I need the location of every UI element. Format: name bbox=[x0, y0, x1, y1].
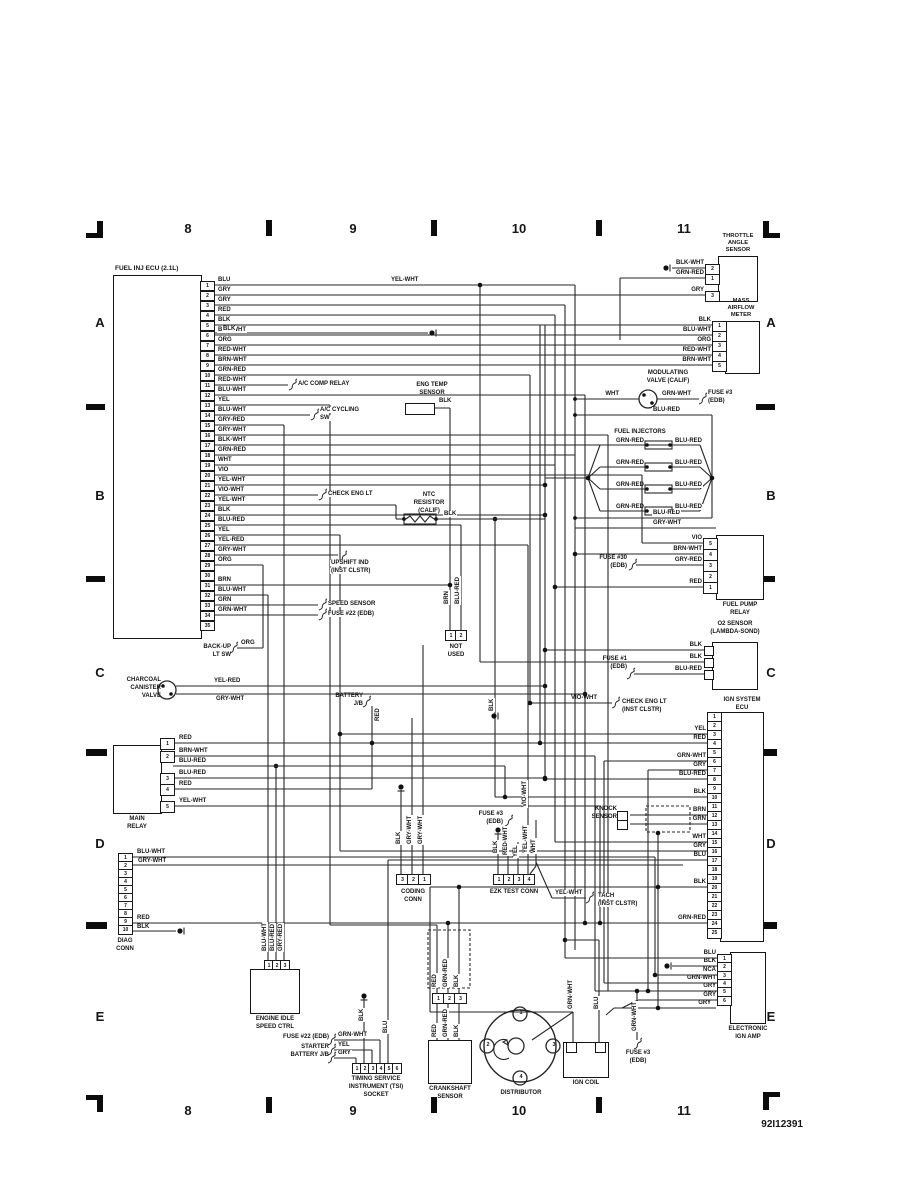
pin-number: 4 bbox=[206, 313, 209, 319]
label-main-wires-3: BLU-RED bbox=[178, 770, 207, 776]
ecu-pin-wire-label: GRN-WHT bbox=[217, 607, 248, 613]
label-backup-t2: LT SW bbox=[50, 652, 232, 658]
pin-number: 2 bbox=[166, 754, 169, 760]
label-labels-upshift_2: (INST CLSTR) bbox=[330, 568, 371, 574]
ecu-pin-wire-label: RED-WHT bbox=[217, 377, 247, 383]
pin-number: 20 bbox=[205, 473, 211, 479]
label-diag-pins-9-w: BLK bbox=[136, 924, 150, 930]
pin-cell: 20 bbox=[200, 471, 215, 481]
label-fuse3b-w: GRN-WHT bbox=[632, 1001, 638, 1032]
junction-dot-icon bbox=[645, 509, 649, 513]
pin-number: 1 bbox=[356, 1066, 359, 1072]
label-throttle-t2: ANGLE bbox=[647, 241, 829, 247]
ecu-pin-wire-label: YEL-RED bbox=[217, 537, 245, 543]
label-fp-f2: (EDB) bbox=[446, 563, 628, 569]
pin-cell: 19 bbox=[200, 461, 215, 471]
label-inj-top: BLU-RED bbox=[652, 407, 681, 413]
label-amp-extra: GRY bbox=[530, 1000, 712, 1006]
pin-number: 3 bbox=[206, 303, 209, 309]
grid-col-bottom-2: 10 bbox=[428, 1104, 610, 1117]
label-amp-t1: ELECTRONIC bbox=[657, 1026, 839, 1032]
pin-cell: 31 bbox=[200, 581, 215, 591]
label-backup-t1: BACK-UP bbox=[50, 644, 232, 650]
pin-number: 3 bbox=[401, 877, 404, 883]
pin-number: 8 bbox=[206, 353, 209, 359]
pin-number: 2 bbox=[460, 633, 463, 639]
o2-stub bbox=[704, 646, 714, 656]
junction-dot-icon bbox=[495, 827, 500, 832]
junction-dot-icon bbox=[503, 795, 508, 800]
label-diag-pins-8-w: RED bbox=[136, 915, 151, 921]
pin-cell: 18 bbox=[200, 451, 215, 461]
label-idle-t1: ENGINE IDLE bbox=[184, 1016, 366, 1022]
label-main-wires-4: RED bbox=[178, 781, 193, 787]
pin-number: 13 bbox=[712, 822, 718, 828]
pin-cell: 16 bbox=[200, 431, 215, 441]
grid-row-right-1: B bbox=[680, 489, 862, 502]
ecu-pin-wire-label: BRN bbox=[217, 577, 232, 583]
pin-number: 6 bbox=[206, 333, 209, 339]
pin-number: 34 bbox=[205, 613, 211, 619]
label-main-t1: MAIN bbox=[46, 816, 228, 822]
label-amp-pins-0-w: BLU bbox=[535, 950, 717, 956]
engine-idle-speed-ctrl-box bbox=[250, 969, 300, 1014]
pin-number: 7 bbox=[206, 343, 209, 349]
label-crank-wires-2: BLK bbox=[454, 974, 460, 988]
pin-number: 10 bbox=[123, 927, 129, 933]
pin-cell: 29 bbox=[200, 561, 215, 571]
junction-dot-icon bbox=[583, 921, 588, 926]
pin-cell: 30 bbox=[200, 571, 215, 581]
junction-dot-icon bbox=[169, 692, 173, 696]
ecu-pin-wire-label: BLK-WHT bbox=[217, 437, 247, 443]
pin-cell: 22 bbox=[200, 491, 215, 501]
pin-cell: 34 bbox=[200, 611, 215, 621]
pin-cell: 4 bbox=[160, 784, 175, 796]
label-tsi-ref2: STARTER bbox=[148, 1044, 330, 1050]
pin-number: 28 bbox=[205, 553, 211, 559]
pin-number: 4 bbox=[718, 353, 721, 359]
ecu-pin-wire-label: GRN-RED bbox=[217, 447, 247, 453]
label-coil-w2: BLU bbox=[594, 996, 600, 1010]
label-checkinst-gnd: BLK bbox=[489, 698, 495, 712]
grid-col-bottom-0: 8 bbox=[97, 1104, 279, 1117]
ecu-pin-wire-label: YEL-WHT bbox=[217, 497, 246, 503]
ecu-pin-wire-label: ORG bbox=[217, 337, 233, 343]
pin-number: 14 bbox=[205, 413, 211, 419]
ecu-pin-wire-label: VIO bbox=[217, 467, 229, 473]
junction-dot-icon bbox=[598, 921, 603, 926]
pin-number: 27 bbox=[205, 543, 211, 549]
label-maf-pins-4-w: BRN-WHT bbox=[530, 357, 712, 363]
pin-number: 5 bbox=[713, 750, 716, 756]
junction-dot-icon bbox=[668, 443, 672, 447]
pin-cell: 25 bbox=[707, 928, 722, 939]
label-o2-w1: BLK bbox=[521, 642, 703, 648]
label-main-wires-1: BRN-WHT bbox=[178, 748, 209, 754]
label-coding-t2: CONN bbox=[322, 897, 504, 903]
pin-cell: 1 bbox=[703, 582, 718, 594]
pin-number: 9 bbox=[713, 786, 716, 792]
label-diag-pins-0-w: BLU-WHT bbox=[136, 849, 166, 855]
registration-mark bbox=[266, 1097, 272, 1113]
junction-dot-icon bbox=[543, 513, 548, 518]
label-inj-grywht: GRY-WHT bbox=[652, 520, 682, 526]
component-circle bbox=[639, 390, 657, 408]
ecu-pin-wire-label: WHT bbox=[217, 457, 233, 463]
label-main-wires-5: YEL-WHT bbox=[178, 798, 207, 804]
label-inj-title: FUEL INJECTORS bbox=[549, 429, 731, 435]
pin-cell: 21 bbox=[200, 481, 215, 491]
pin-number: 18 bbox=[712, 867, 718, 873]
label-engtemp-w: BLK bbox=[438, 398, 452, 404]
junction-dot-icon bbox=[177, 928, 182, 933]
junction-dot-icon bbox=[668, 487, 672, 491]
pin-number: 1 bbox=[498, 877, 501, 883]
pin-number: 2 bbox=[508, 877, 511, 883]
junction-dot-icon bbox=[645, 443, 649, 447]
label-o2-t2: (LAMBDA-SOND) bbox=[644, 629, 826, 635]
pin-number: 1 bbox=[166, 741, 169, 747]
ecu-pin-wire-label: YEL bbox=[217, 397, 231, 403]
label-mod-wr: GRN-WHT bbox=[661, 391, 692, 397]
label-mod-f1: FUSE #3 bbox=[707, 390, 733, 396]
label-inj-r: BLU-RED bbox=[674, 504, 703, 510]
pin-number: 3 bbox=[718, 343, 721, 349]
label-ezk-f2: (EDB) bbox=[322, 819, 504, 825]
label-tsi-rw3: GRY bbox=[337, 1050, 352, 1056]
label-tsi-rw2: YEL bbox=[337, 1042, 351, 1048]
label-ezk-vio: VIO-WHT bbox=[522, 780, 528, 808]
pin-number: 3 bbox=[284, 963, 287, 969]
junction-dot-icon bbox=[448, 583, 453, 588]
label-o2-f2: (EDB) bbox=[446, 664, 628, 670]
label-tsi-rw1: GRN-WHT bbox=[337, 1032, 368, 1038]
pin-cell: 10 bbox=[118, 925, 133, 935]
label-maf-t2: AIRFLOW bbox=[650, 306, 832, 312]
pin-number: 10 bbox=[205, 373, 211, 379]
registration-mark bbox=[86, 922, 107, 929]
pin-number: 4 bbox=[528, 877, 531, 883]
offpage-connector-icon bbox=[289, 379, 297, 390]
label-maf-pins-0-w: BLK bbox=[530, 317, 712, 323]
mass-airflow-meter-box bbox=[725, 321, 760, 374]
label-tsi-ref3: BATTERY J/B bbox=[148, 1052, 330, 1058]
label-amp-t2: IGN AMP bbox=[657, 1034, 839, 1040]
grid-col-bottom-1: 9 bbox=[262, 1104, 444, 1117]
label-labels-upshift_1: UPSHIFT IND bbox=[330, 560, 370, 566]
ecu-pin-wire-label: GRY-WHT bbox=[217, 427, 247, 433]
pin-number: 2 bbox=[713, 723, 716, 729]
junction-dot-icon bbox=[528, 701, 533, 706]
junction-dot-icon bbox=[429, 330, 434, 335]
label-labels-blk_p5b: BLK bbox=[222, 326, 236, 332]
label-fuse3b-f1: FUSE #3 bbox=[547, 1050, 729, 1056]
pin-number: 11 bbox=[712, 804, 717, 810]
pin-number: 15 bbox=[712, 840, 718, 846]
label-throttle-t1: THROTTLE bbox=[647, 234, 829, 240]
offpage-connector-icon bbox=[319, 609, 327, 620]
pin-number: 2 bbox=[723, 964, 726, 970]
registration-mark bbox=[86, 749, 107, 756]
ecu-pin-wire-label: ORG bbox=[217, 557, 233, 563]
label-ezk-tach2: (INST CLSTR) bbox=[597, 901, 638, 907]
pin-number: 19 bbox=[205, 463, 211, 469]
pin-cell: 3 bbox=[454, 993, 467, 1004]
label-maf-t1: MASS bbox=[650, 299, 832, 305]
label-inj-l: GRN-RED bbox=[463, 438, 645, 444]
label-labels-speed_sensor: SPEED SENSOR bbox=[327, 601, 376, 607]
registration-mark bbox=[86, 1095, 103, 1100]
label-tsi-v2: BLU bbox=[383, 1020, 389, 1034]
pin-cell: 11 bbox=[200, 381, 215, 391]
label-ignecu-t2: ECU bbox=[651, 705, 833, 711]
pin-cell: 5 bbox=[160, 801, 175, 813]
pin-number: 24 bbox=[205, 513, 211, 519]
junction-dot-icon bbox=[361, 993, 366, 998]
label-amp-pins-5-w: GRY bbox=[535, 992, 717, 998]
junction-dot-icon bbox=[573, 397, 577, 401]
grid-col-top-1: 9 bbox=[262, 222, 444, 235]
pin-number: 6 bbox=[723, 998, 726, 1004]
pin-cell: 1 bbox=[418, 874, 431, 885]
ecu-pin-wire-label: BLU-RED bbox=[217, 517, 246, 523]
label-throttle-pins-1-w: GRN-RED bbox=[523, 270, 705, 276]
pin-cell: 2 bbox=[200, 291, 215, 301]
pin-number: 15 bbox=[205, 423, 211, 429]
junction-dot-icon bbox=[650, 401, 654, 405]
ecu-pin-wire-label: RED bbox=[217, 307, 232, 313]
pin-number: 31 bbox=[205, 583, 211, 589]
label-backup-w: ORG bbox=[240, 640, 256, 646]
pin-number: 4 bbox=[380, 1066, 383, 1072]
pin-number: 3 bbox=[372, 1066, 375, 1072]
label-battery-t1: BATTERY bbox=[182, 693, 364, 699]
pin-cell: 7 bbox=[200, 341, 215, 351]
label-maf-pins-1-w: BLU-WHT bbox=[530, 327, 712, 333]
offpage-connector-icon bbox=[319, 489, 327, 500]
label-main-wires-0: RED bbox=[178, 735, 193, 741]
label-idle-wires-1: BLU-RED bbox=[270, 923, 276, 952]
label-notused-wires-0: BRN bbox=[444, 590, 450, 605]
junction-dot-icon bbox=[402, 517, 406, 521]
label-fp-pins-1-w: BRN-WHT bbox=[521, 546, 703, 552]
pin-cell: 27 bbox=[200, 541, 215, 551]
label-throttle-t3: SENSOR bbox=[647, 248, 829, 254]
label-ignecu-pins-23-w: GRN-RED bbox=[525, 915, 707, 921]
label-ignecu-pins-19-w: BLK bbox=[525, 879, 707, 885]
grid-row-left-4: E bbox=[9, 1010, 191, 1023]
pin-number: 1 bbox=[437, 996, 440, 1002]
o2-sensor-box bbox=[712, 642, 758, 690]
label-ignecu-t1: IGN SYSTEM bbox=[651, 697, 833, 703]
junction-dot-icon bbox=[446, 921, 451, 926]
label-inj-bottom: BLU-RED bbox=[652, 510, 681, 516]
pin-cell: 32 bbox=[200, 591, 215, 601]
pin-cell: 35 bbox=[200, 621, 215, 631]
label-amp-pins-2-w: NCA bbox=[535, 967, 717, 973]
knock-pin bbox=[617, 820, 628, 830]
label-fp-t1: FUEL PUMP bbox=[649, 602, 831, 608]
pin-number: 1 bbox=[709, 585, 712, 591]
label-ignecu-pins-9-w: BLK bbox=[525, 789, 707, 795]
label-coil-w1: GRN-WHT bbox=[568, 979, 574, 1010]
pin-number: 11 bbox=[205, 383, 210, 389]
label-charcoal-t3: VALVE bbox=[0, 693, 162, 699]
label-ignecu-pins-2-w: YEL bbox=[525, 726, 707, 732]
pin-number: 17 bbox=[712, 858, 718, 864]
pin-number: 6 bbox=[396, 1066, 399, 1072]
ecu-pin-wire-label: BLU-WHT bbox=[217, 407, 247, 413]
offpage-connector-icon bbox=[363, 696, 371, 707]
pin-number: 9 bbox=[206, 363, 209, 369]
ecu-pin-wire-label: BRN-WHT bbox=[217, 357, 248, 363]
label-fp-t2: RELAY bbox=[649, 610, 831, 616]
label-notused-t1: NOT bbox=[365, 644, 547, 650]
label-charcoal-w1: YEL-RED bbox=[213, 678, 241, 684]
label-inj-r: BLU-RED bbox=[674, 438, 703, 444]
label-maf-pins-3-w: RED-WHT bbox=[530, 347, 712, 353]
pin-number: 5 bbox=[718, 363, 721, 369]
ecu-pin-wire-label: GRN-RED bbox=[217, 367, 247, 373]
label-tsi-ref1: FUSE #22 (EDB) bbox=[148, 1034, 330, 1040]
label-ezk-title: EZK TEST CONN bbox=[423, 889, 605, 895]
pin-cell: 14 bbox=[200, 411, 215, 421]
label-ntc-t2: RESISTOR bbox=[338, 500, 520, 506]
pin-number: 14 bbox=[712, 831, 718, 837]
grid-row-right-4: E bbox=[680, 1010, 862, 1023]
label-mod-t1: MODULATING bbox=[577, 370, 759, 376]
wire-path bbox=[406, 516, 434, 522]
pin-cell: 25 bbox=[200, 521, 215, 531]
pin-number: 20 bbox=[712, 885, 718, 891]
ecu-pin-wire-label: BLU bbox=[217, 277, 231, 283]
registration-mark bbox=[266, 220, 272, 236]
ecu-pin-wire-label: YEL bbox=[217, 527, 231, 533]
ecu-pin-wire-label: YEL-WHT bbox=[217, 477, 246, 483]
grid-col-top-0: 8 bbox=[97, 222, 279, 235]
label-engtemp-t1: ENG TEMP bbox=[341, 382, 523, 388]
label-ezk-wires-3: YEL-WHT bbox=[523, 825, 529, 854]
pin-cell: 1 bbox=[705, 274, 720, 285]
pin-number: 3 bbox=[713, 732, 716, 738]
grid-col-bottom-3: 11 bbox=[593, 1104, 775, 1117]
pin-number: 7 bbox=[713, 768, 716, 774]
label-fp-pins-0-w: VIO bbox=[521, 535, 703, 541]
registration-mark bbox=[86, 576, 105, 582]
pin-cell: 9 bbox=[200, 361, 215, 371]
label-labels-ac_cycling_2: SW bbox=[319, 415, 331, 421]
label-dist-terminals-0: 1 bbox=[430, 1011, 612, 1017]
wiring-diagram-page: 889910101111AABBCCDDEE92I12391FUEL INJ E… bbox=[0, 0, 918, 1188]
label-tsi-v1: BLK bbox=[359, 1008, 365, 1022]
ecu-pin-wire-label: GRY-WHT bbox=[217, 547, 247, 553]
label-checkinst-w: VIO-WHT bbox=[416, 695, 598, 701]
label-diag-t2: CONN bbox=[34, 946, 216, 952]
ecu-pin-wire-label: GRN bbox=[217, 597, 232, 603]
pin-number: 17 bbox=[205, 443, 211, 449]
pin-number: 5 bbox=[206, 323, 209, 329]
offpage-connector-icon bbox=[699, 393, 707, 404]
pin-number: 26 bbox=[205, 533, 211, 539]
pin-number: 16 bbox=[205, 433, 211, 439]
pin-number: 2 bbox=[448, 996, 451, 1002]
pin-number: 2 bbox=[709, 574, 712, 580]
pin-number: 2 bbox=[364, 1066, 367, 1072]
label-ezk-f1: FUSE #3 bbox=[322, 811, 504, 817]
junction-dot-icon bbox=[491, 713, 496, 718]
pin-cell: 3 bbox=[200, 301, 215, 311]
pin-number: 23 bbox=[205, 503, 211, 509]
pin-cell: 26 bbox=[200, 531, 215, 541]
main-relay-box bbox=[113, 745, 162, 814]
pin-cell: 2 bbox=[160, 751, 175, 763]
pin-number: 2 bbox=[711, 266, 714, 272]
ecu-pin-wire-label: BLK bbox=[217, 317, 231, 323]
label-ntc-t1: NTC bbox=[338, 492, 520, 498]
pin-number: 3 bbox=[459, 996, 462, 1002]
label-main-wires-2: BLU-RED bbox=[178, 758, 207, 764]
label-labels-fuse22: FUSE #22 (EDB) bbox=[327, 611, 375, 617]
junction-dot-icon bbox=[710, 476, 715, 481]
registration-mark bbox=[596, 1097, 602, 1113]
label-ignecu-pins-14-w: WHT bbox=[525, 834, 707, 840]
wire bbox=[530, 866, 536, 874]
label-coding-wires-0: BLK bbox=[396, 831, 402, 845]
pin-cell: 6 bbox=[717, 996, 732, 1006]
label-inj-l: GRN-RED bbox=[463, 460, 645, 466]
label-mod-t2: VALVE (CALIF) bbox=[577, 378, 759, 384]
label-crank-wires-2: BLK bbox=[454, 1024, 460, 1038]
label-ignecu-pins-7-w: BLU-RED bbox=[525, 771, 707, 777]
pin-number: 22 bbox=[712, 903, 718, 909]
registration-mark bbox=[431, 220, 437, 236]
pin-number: 8 bbox=[713, 777, 716, 783]
registration-mark bbox=[756, 404, 775, 410]
label-ignecu-pins-16-w: BLU bbox=[525, 852, 707, 858]
pin-number: 3 bbox=[518, 877, 521, 883]
ign-system-ecu-box bbox=[720, 712, 764, 942]
junction-dot-icon bbox=[370, 741, 375, 746]
label-charcoal-t1: CHARCOAL bbox=[0, 677, 162, 683]
label-dist-terminals-2: 3 bbox=[463, 1043, 645, 1049]
pin-number: 6 bbox=[713, 759, 716, 765]
label-main-t2: RELAY bbox=[46, 824, 228, 830]
pin-cell: 13 bbox=[200, 401, 215, 411]
pin-cell: 5 bbox=[200, 321, 215, 331]
pin-number: 29 bbox=[205, 563, 211, 569]
ecu-pin-wire-label: BLU-WHT bbox=[217, 587, 247, 593]
pin-cell: 4 bbox=[200, 311, 215, 321]
junction-dot-icon bbox=[573, 413, 577, 417]
pin-number: 35 bbox=[205, 623, 211, 629]
label-ezk-wires-2: YEL bbox=[513, 844, 519, 858]
junction-dot-icon bbox=[573, 516, 577, 520]
o2-stub bbox=[704, 658, 714, 668]
label-throttle-pins-0-w: BLK-WHT bbox=[523, 260, 705, 266]
ecu-pin-wire-label: VIO-WHT bbox=[217, 487, 245, 493]
junction-dot-icon bbox=[398, 784, 403, 789]
label-ignecu-pins-5-w: GRN-WHT bbox=[525, 753, 707, 759]
pin-number: 32 bbox=[205, 593, 211, 599]
junction-dot-icon bbox=[642, 393, 646, 397]
label-amp-pins-4-w: GRY bbox=[535, 983, 717, 989]
label-labels-yel_wht_top: YEL-WHT bbox=[390, 277, 419, 283]
shield-outline bbox=[645, 463, 672, 471]
pin-number: 4 bbox=[166, 787, 169, 793]
pin-number: 4 bbox=[709, 552, 712, 558]
throttle-angle-sensor-box bbox=[718, 256, 758, 302]
